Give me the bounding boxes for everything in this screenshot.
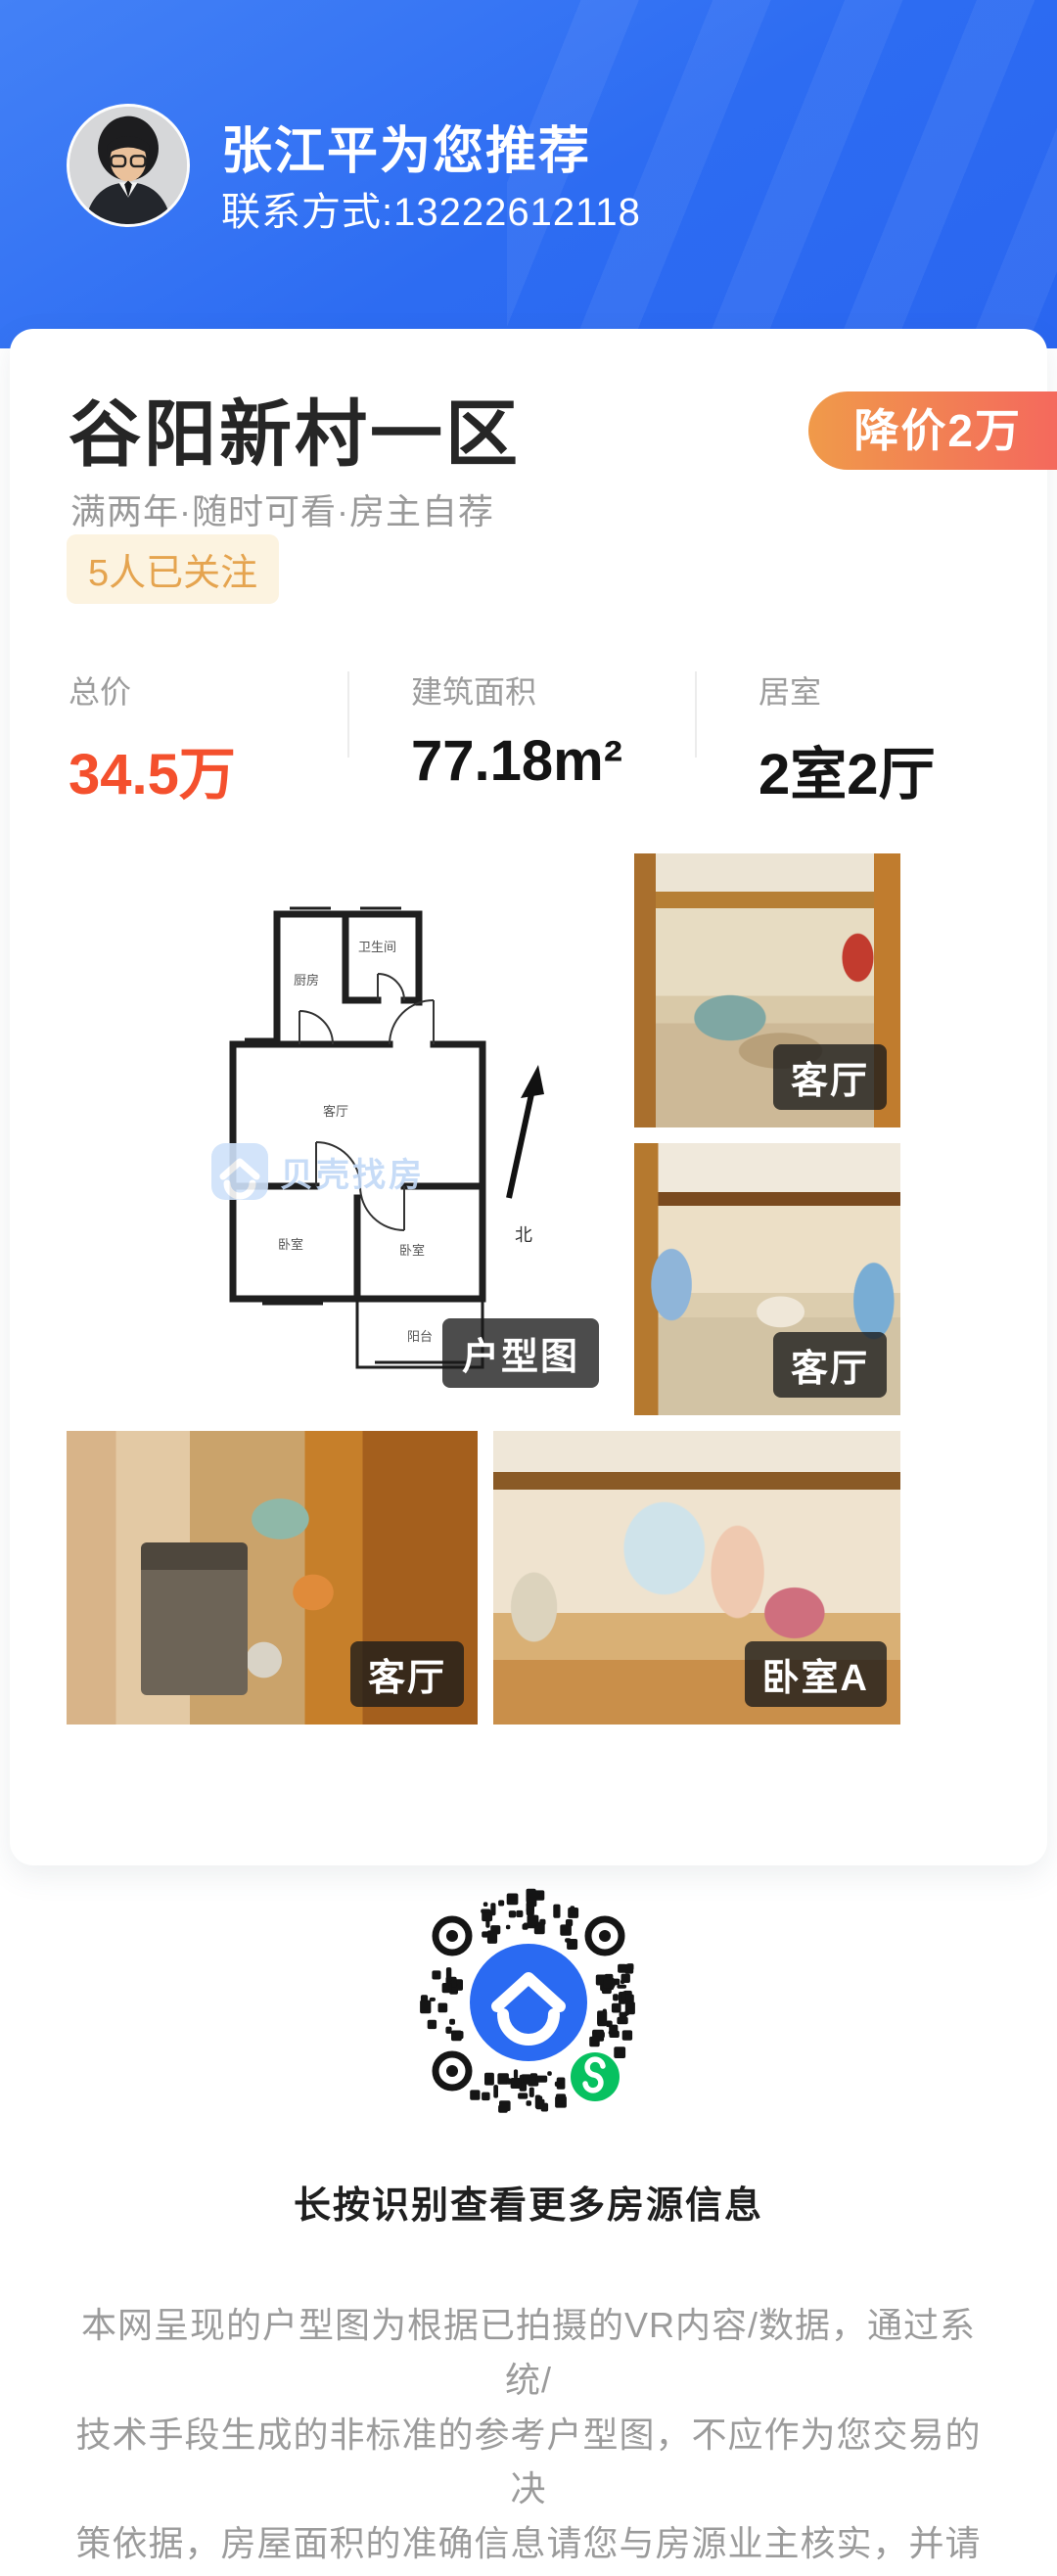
agent-contact-phone[interactable]: 联系方式:13222612118 (221, 180, 641, 237)
price-cut-badge: 降价2万 (808, 391, 1057, 470)
svg-text:客厅: 客厅 (323, 1104, 348, 1119)
stat-total-price: 总价 34.5万 (69, 667, 236, 810)
north-label: 北 (515, 1225, 532, 1245)
disclaimer-line: 本网呈现的户型图为根据已拍摄的VR内容/数据，通过系统/ (64, 2298, 993, 2408)
photo-living-room-3: 客厅 (67, 1431, 478, 1725)
photo-label: 客厅 (350, 1641, 464, 1707)
listing-title: 谷阳新村一区 (69, 376, 521, 481)
svg-text:卧室: 卧室 (399, 1243, 425, 1258)
photo-living-room-2: 客厅 (634, 1143, 900, 1415)
qr-code[interactable] (401, 1885, 656, 2139)
stat-value: 34.5万 (69, 728, 236, 810)
disclaimer-line: 策依据，房屋面积的准确信息请您与房源业主核实，并请以 (64, 2516, 993, 2576)
photo-label: 客厅 (773, 1332, 887, 1398)
stat-rooms: 居室 2室2厅 (758, 667, 936, 810)
agent-avatar (67, 104, 190, 227)
stat-label: 居室 (758, 667, 936, 713)
floorplan-tag: 户型图 (442, 1318, 599, 1388)
svg-text:阳台: 阳台 (407, 1329, 433, 1344)
listing-tags: 满两年·随时可看·房主自荐 (70, 483, 494, 534)
floorplan-image: 北 厨房 卫生间 客厅 卧室 卧室 阳台 贝壳找房 户型图 (67, 853, 615, 1415)
disclaimer-line: 技术手段生成的非标准的参考户型图，不应作为您交易的决 (64, 2408, 993, 2517)
stats-row: 总价 34.5万 建筑面积 77.18m² 居室 2室2厅 (10, 667, 1047, 805)
photo-label: 卧室A (745, 1641, 887, 1707)
promo-header: 张江平为您推荐 联系方式:13222612118 (0, 0, 1057, 348)
listing-card: 谷阳新村一区 降价2万 满两年·随时可看·房主自荐 5人已关注 总价 34.5万… (10, 329, 1047, 1865)
disclaimer-text: 本网呈现的户型图为根据已拍摄的VR内容/数据，通过系统/ 技术手段生成的非标准的… (64, 2298, 993, 2576)
photo-label: 客厅 (773, 1044, 887, 1110)
beike-watermark-logo: 贝壳找房 (211, 1143, 425, 1200)
stat-divider (695, 671, 697, 758)
svg-text:厨房: 厨房 (294, 973, 319, 988)
north-indicator: 北 (509, 1065, 544, 1245)
wechat-icon (571, 2052, 620, 2101)
beike-watermark-text: 贝壳找房 (280, 1157, 425, 1194)
stat-floor-area: 建筑面积 77.18m² (411, 667, 622, 794)
svg-text:卫生间: 卫生间 (358, 940, 396, 954)
stat-label: 总价 (69, 667, 236, 713)
agent-photo-placeholder (69, 107, 187, 224)
stat-divider (347, 671, 349, 758)
qr-code-graphic (401, 1885, 656, 2139)
photo-bedroom-a: 卧室A (493, 1431, 900, 1725)
stat-value: 2室2厅 (758, 728, 936, 810)
photo-living-room-1: 客厅 (634, 853, 900, 1127)
svg-text:卧室: 卧室 (278, 1237, 303, 1252)
follow-count-badge: 5人已关注 (67, 534, 279, 604)
agent-name: 张江平为您推荐 (221, 110, 591, 183)
qr-caption: 长按识别查看更多房源信息 (0, 2175, 1057, 2229)
stat-label: 建筑面积 (411, 667, 622, 713)
beike-logo-icon (470, 1944, 587, 2061)
share-page: 张江平为您推荐 联系方式:13222612118 谷阳新村一区 降价2万 满两年… (0, 0, 1057, 2576)
stat-value: 77.18m² (411, 728, 622, 794)
